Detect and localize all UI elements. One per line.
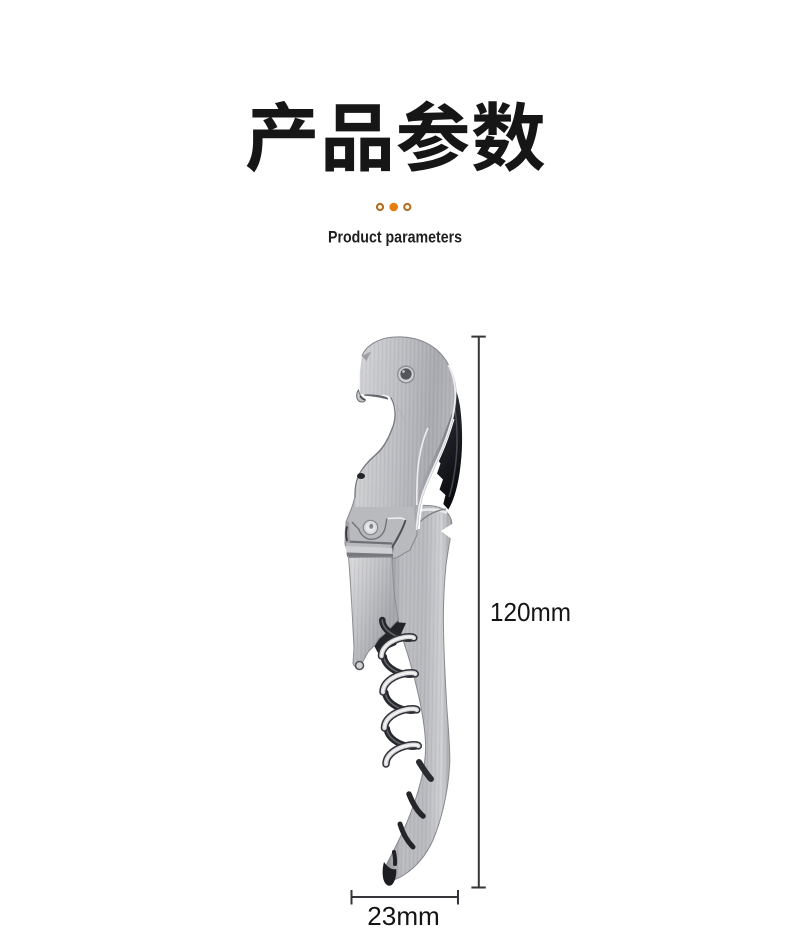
svg-text:23mm: 23mm	[367, 901, 440, 931]
svg-text:Product parameters: Product parameters	[328, 228, 462, 247]
svg-text:120mm: 120mm	[490, 597, 571, 627]
